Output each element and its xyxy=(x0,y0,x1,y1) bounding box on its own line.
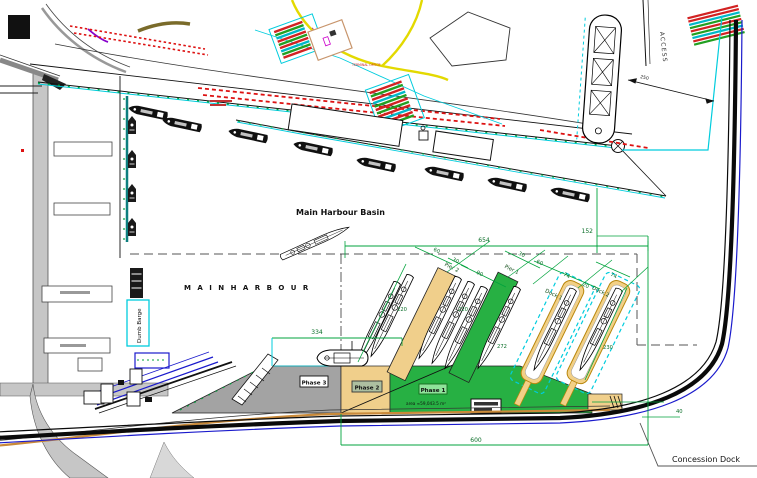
concession-dock-label: Concession Dock xyxy=(672,455,740,464)
phase2-label: Phase 2 xyxy=(355,386,380,392)
barge xyxy=(130,268,143,298)
dim-272: 272 xyxy=(497,344,507,350)
harbour-master-plan: TERMINAL OFFICE xyxy=(0,0,757,478)
dim-654: 654 xyxy=(478,237,490,244)
red-marker xyxy=(21,149,24,152)
dim-pier1-220: 220 xyxy=(458,307,468,313)
main-harbour-basin-label: Main Harbour Basin xyxy=(296,208,385,217)
dim-40: 40 xyxy=(676,409,683,415)
main-harbour-label: M A I N H A R B O U R xyxy=(184,284,310,292)
dumb-barge-label: Dumb Barge xyxy=(137,308,143,343)
phase3-label: Phase 3 xyxy=(302,381,327,387)
dim-600: 600 xyxy=(470,437,482,444)
dim-334: 334 xyxy=(311,329,323,336)
building-block xyxy=(8,15,30,39)
terminal-office-label: TERMINAL OFFICE xyxy=(351,63,381,67)
dim-230: 230 xyxy=(603,345,613,351)
dim-pier2-220: 220 xyxy=(397,307,407,313)
dim-152: 152 xyxy=(582,228,594,235)
phase1-area-label: area ≈59,043.5 m² xyxy=(406,401,446,406)
quay-crane xyxy=(419,131,428,140)
phase1-label: Phase 1 xyxy=(421,388,446,394)
